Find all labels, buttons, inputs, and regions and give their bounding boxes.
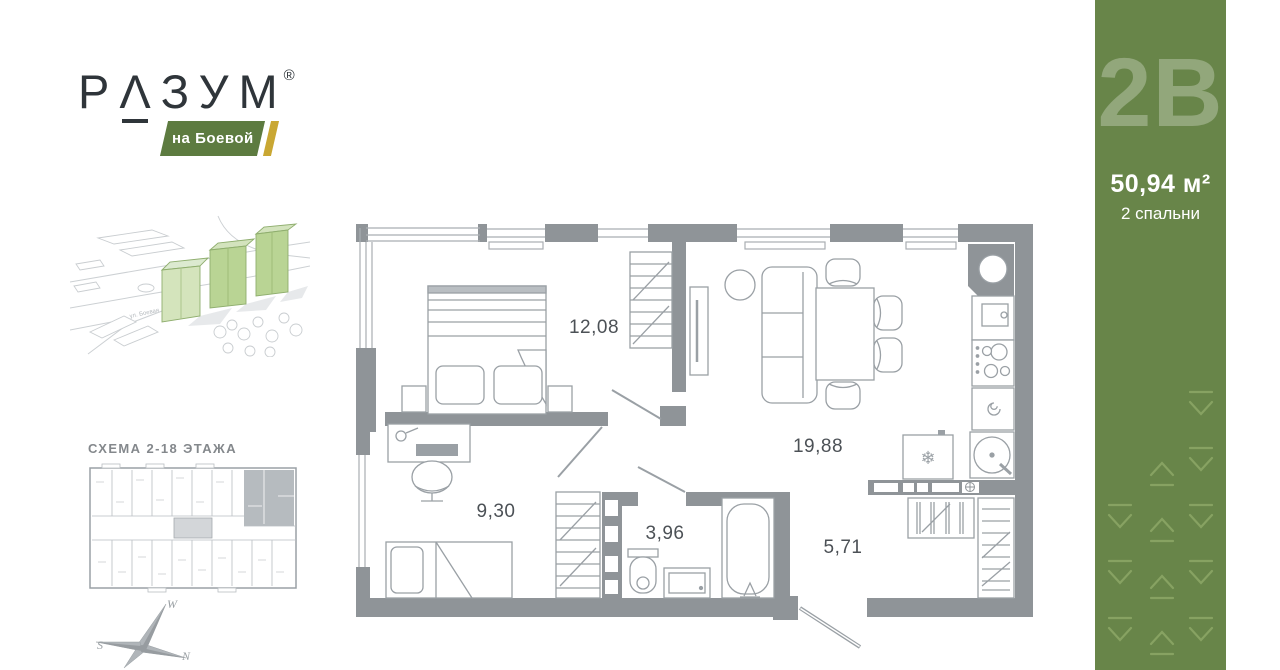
washing-machine: [970, 432, 1014, 478]
hall-closet-vertical: [978, 498, 1014, 598]
site-map-illustration: ул. Боевая: [70, 212, 310, 357]
compass-south: S: [97, 638, 103, 652]
dining-table: [816, 288, 874, 380]
single-bed: [386, 542, 512, 598]
tv-console: [690, 287, 708, 375]
hall-closet-horizontal: [908, 498, 974, 538]
kitchen-sink: [979, 255, 1007, 283]
brand-word-end: ЗУМ: [161, 65, 288, 118]
bathroom-sink: [664, 568, 710, 598]
stove: [972, 340, 1014, 386]
bathtub: [722, 498, 774, 598]
floor-plan: ❄: [350, 215, 1045, 660]
site-shadows: [188, 286, 308, 326]
fridge-snowflake-icon: ❄: [920, 448, 935, 468]
room-area-bedroom-2: 9,30: [477, 501, 516, 522]
location-banner: на Боевой: [160, 121, 265, 156]
floor-schema-title: СХЕМА 2-18 ЭТАЖА: [88, 441, 237, 456]
page: РΛЗУМ® на Боевой: [0, 0, 1280, 670]
vent-valve-icon: [966, 483, 975, 492]
keyplan-core: [174, 518, 212, 538]
compass-north: N: [181, 649, 191, 663]
keyplan-highlighted-unit: [244, 470, 294, 526]
side-table: [725, 270, 755, 300]
compass-west: W: [167, 597, 178, 611]
double-bed: [428, 286, 546, 414]
floor-schema-keyplan: [88, 462, 300, 594]
fridge: ❄: [903, 430, 953, 479]
desk: [388, 424, 470, 462]
banner-gold-stripe: [263, 121, 279, 156]
room-area-bathroom: 3,96: [646, 523, 685, 544]
desk-chair: [412, 461, 452, 501]
location-banner-label: на Боевой: [172, 130, 254, 147]
compass-rose: W S N: [88, 592, 208, 670]
compass-star: [96, 604, 186, 668]
brand-word-start: Р: [78, 65, 119, 118]
room-area-bedroom-1: 12,08: [569, 317, 619, 338]
site-buildings: [162, 224, 296, 322]
room-area-hallway: 5,71: [824, 537, 863, 558]
chevron-pattern: [1095, 0, 1226, 670]
door-leaves: [558, 390, 685, 492]
brand-caret-letter: Λ: [119, 68, 160, 115]
brand-logo: РΛЗУМ®: [78, 68, 295, 115]
kitchen-counter: [972, 296, 1014, 340]
unit-info-panel: 2В 50,94 м² 2 спальни: [1095, 0, 1226, 670]
site-trees: [214, 313, 302, 357]
room-area-living-room: 19,88: [793, 436, 843, 457]
entrance-door: [800, 608, 860, 647]
nightstand-right: [548, 386, 572, 412]
toilet: [628, 549, 658, 593]
wardrobe-bedroom-1: [630, 252, 672, 348]
sofa: [762, 267, 817, 403]
nightstand-left: [402, 386, 426, 412]
wardrobe-bedroom-2: [556, 492, 600, 598]
registered-mark: ®: [284, 67, 295, 84]
oven: [972, 388, 1014, 430]
